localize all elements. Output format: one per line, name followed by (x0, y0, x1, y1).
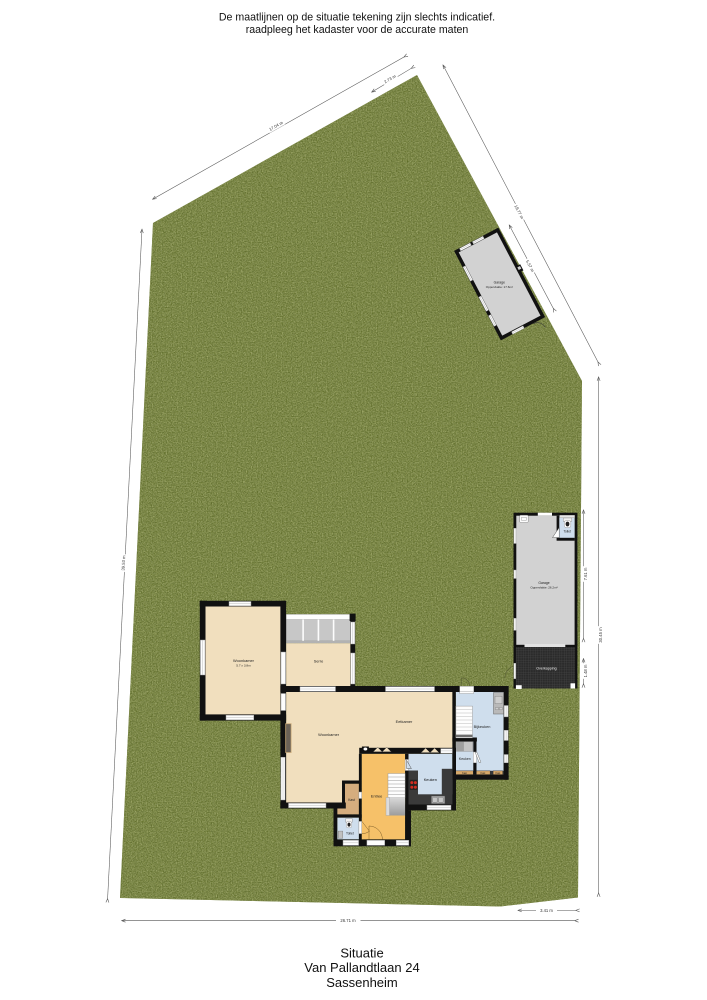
svg-text:Oppervlakte: 17.6m²: Oppervlakte: 17.6m² (486, 285, 513, 289)
svg-text:Kast: Kast (496, 772, 501, 775)
svg-text:Oppervlakte: 26.2m²: Oppervlakte: 26.2m² (530, 585, 557, 589)
svg-text:Kast: Kast (348, 798, 355, 802)
svg-text:Woonkamer: Woonkamer (318, 732, 340, 737)
svg-text:Keuken: Keuken (424, 777, 437, 782)
svg-text:Kast: Kast (481, 772, 486, 775)
svg-text:raadpleeg het kadaster voor de: raadpleeg het kadaster voor de accurate … (246, 24, 469, 36)
svg-text:De maatlijnen op de situatie t: De maatlijnen op de situatie tekening zi… (219, 12, 495, 24)
svg-text:Serre: Serre (314, 659, 324, 664)
svg-text:Eetkamer: Eetkamer (396, 719, 413, 724)
svg-text:5.7 x 3.8m: 5.7 x 3.8m (236, 664, 251, 668)
svg-text:Toilet: Toilet (346, 832, 354, 836)
svg-text:3.41 m: 3.41 m (540, 908, 553, 913)
svg-text:Keuken: Keuken (459, 757, 471, 761)
svg-text:30.45 m: 30.45 m (598, 627, 603, 643)
svg-text:Sassenheim: Sassenheim (326, 975, 398, 990)
svg-text:Situatie: Situatie (340, 946, 383, 961)
svg-text:Kast: Kast (462, 772, 467, 775)
svg-text:Overkapping: Overkapping (536, 667, 556, 671)
svg-text:Bijkeuken: Bijkeuken (474, 724, 491, 729)
svg-text:26.71 m: 26.71 m (340, 918, 356, 923)
svg-text:39.53 m: 39.53 m (121, 555, 127, 571)
svg-text:Entree: Entree (371, 794, 382, 799)
svg-text:1.48 m: 1.48 m (583, 664, 588, 677)
svg-text:Woonkamer: Woonkamer (233, 658, 255, 663)
svg-text:Van Pallandtlaan 24: Van Pallandtlaan 24 (304, 960, 419, 975)
svg-text:7.61 m: 7.61 m (583, 567, 588, 580)
svg-text:5.57 m: 5.57 m (525, 259, 536, 273)
svg-text:Toilet: Toilet (563, 530, 571, 534)
